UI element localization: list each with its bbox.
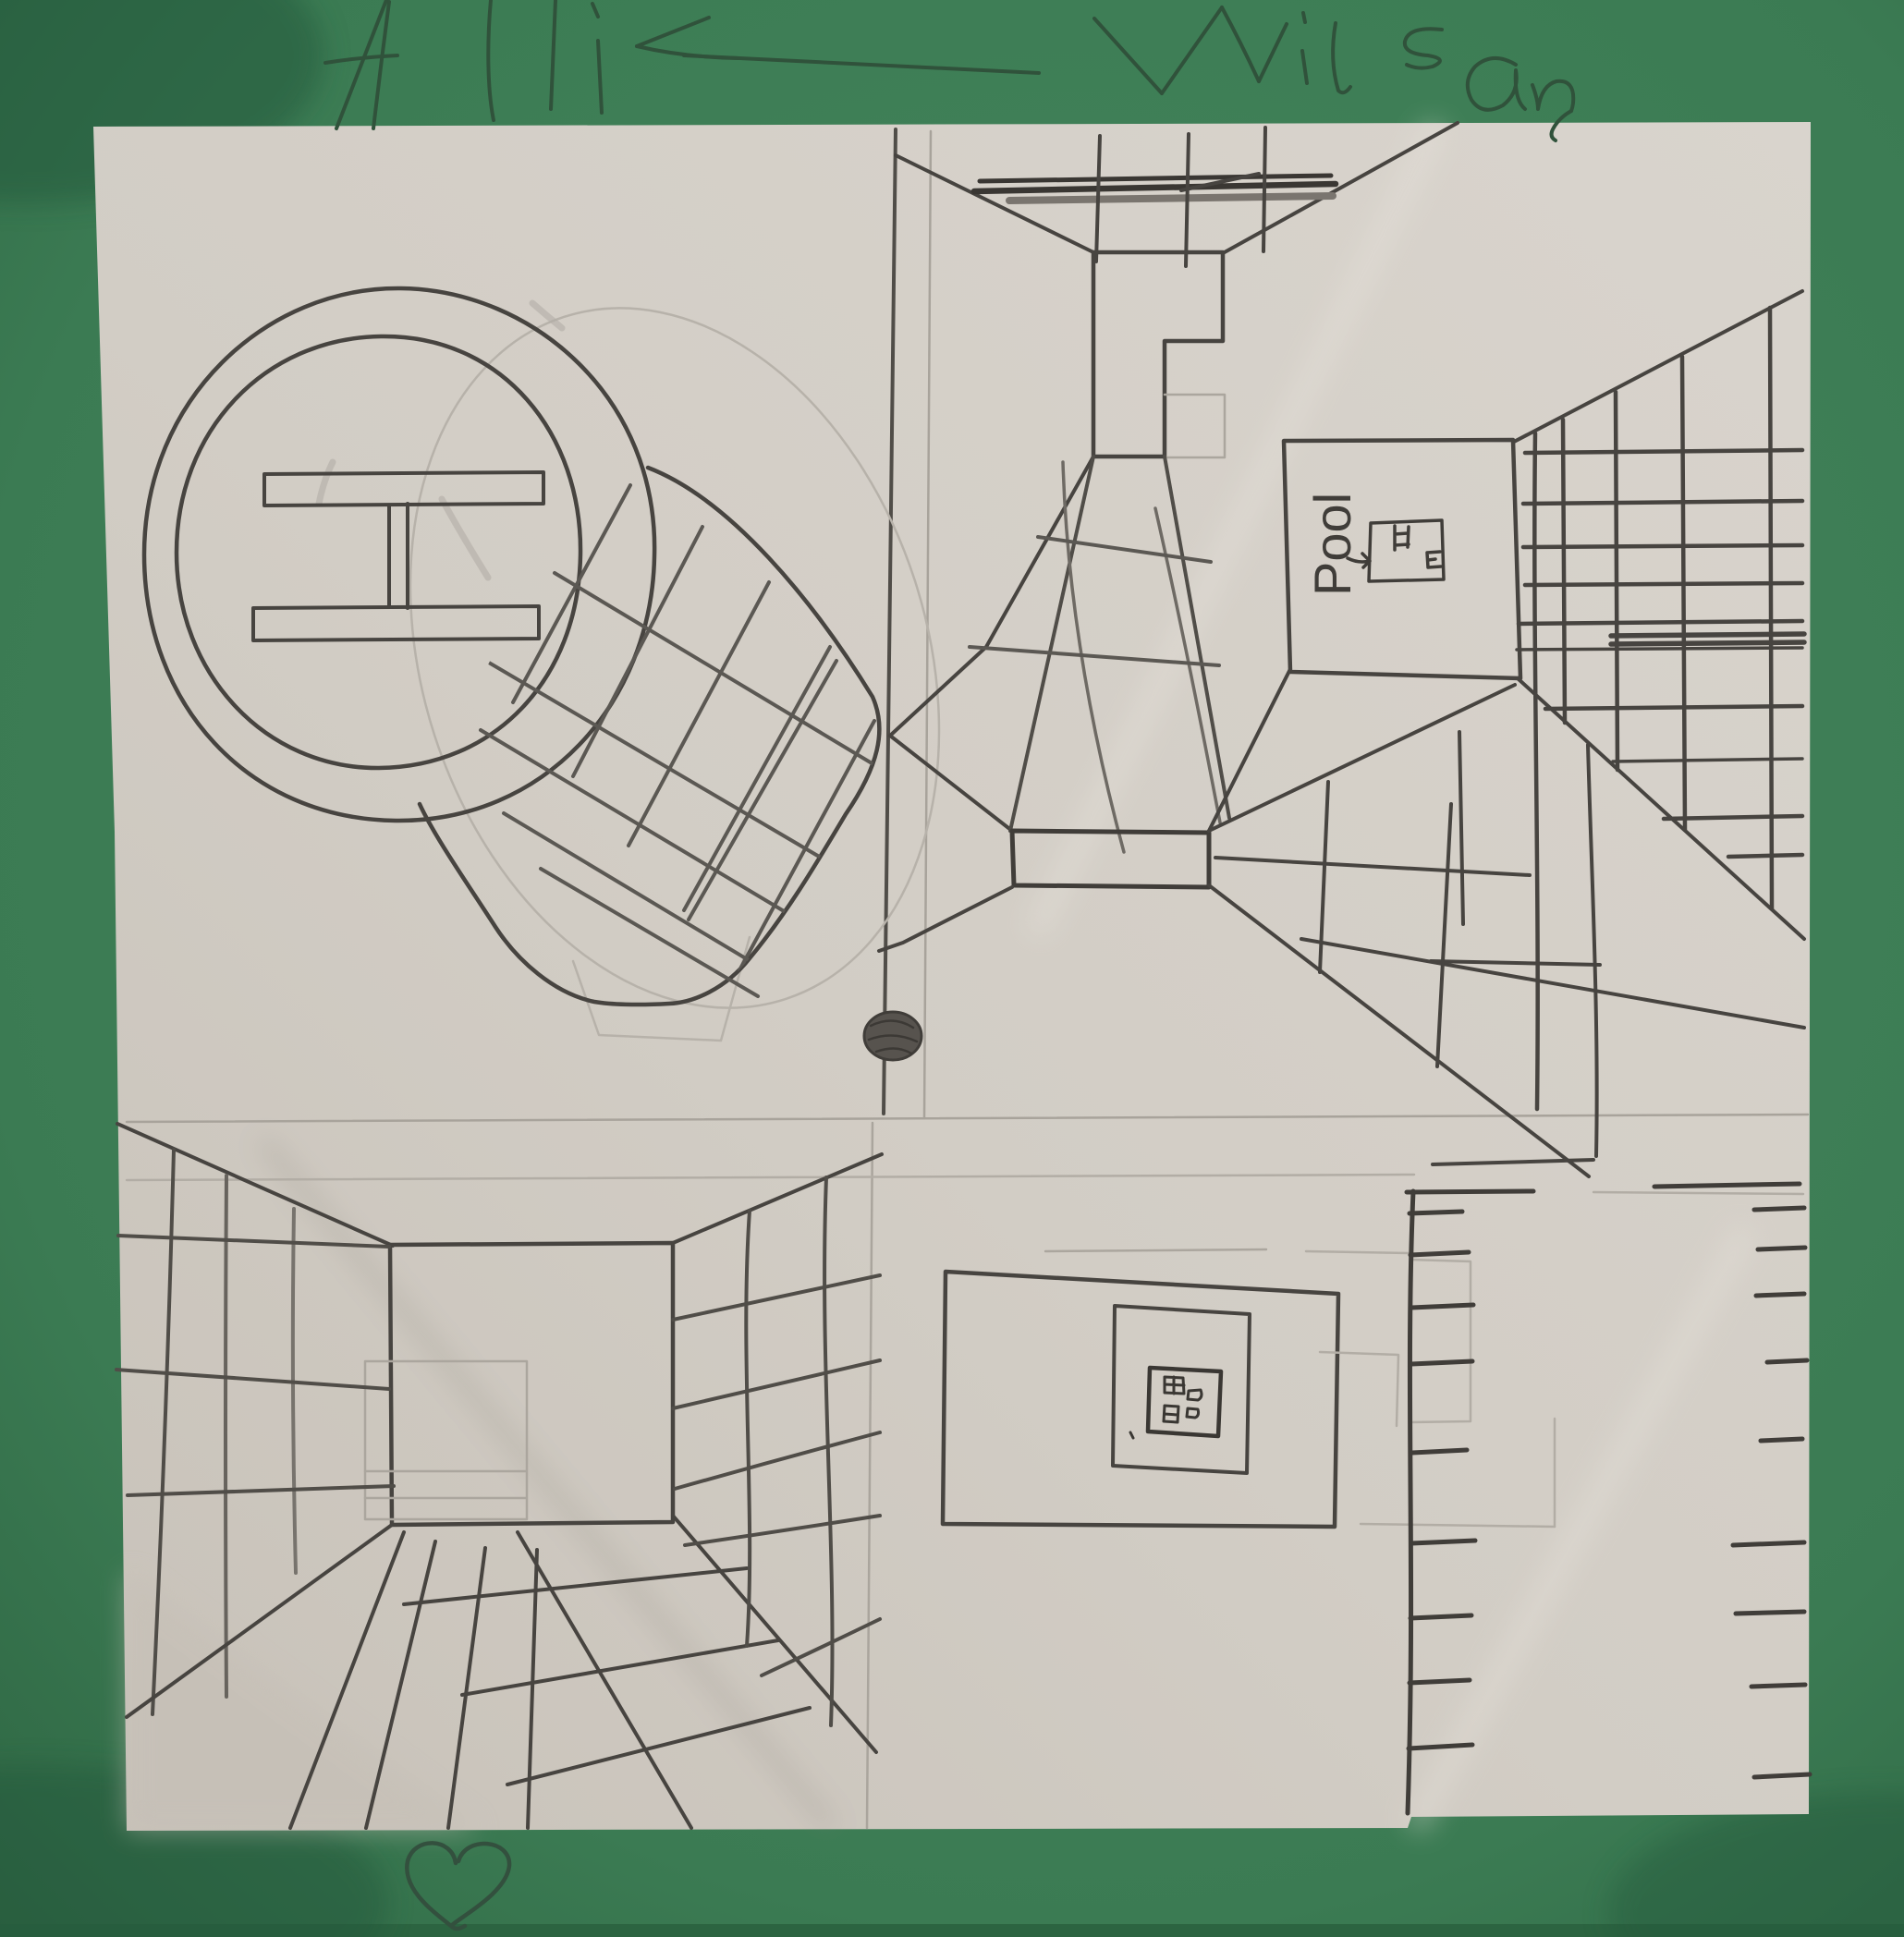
- svg-text:Pool: Pool: [1303, 493, 1361, 596]
